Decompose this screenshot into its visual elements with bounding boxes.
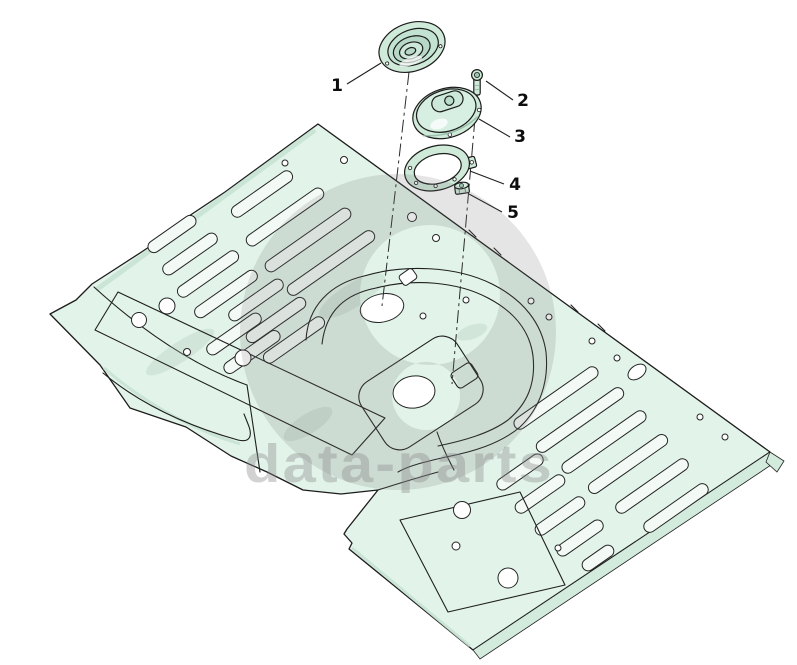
parts-diagram-canvas: 1 2 3 4 5 data-parts: [0, 0, 797, 665]
screw-head-recess: [474, 72, 479, 77]
bolt-hole: [433, 235, 440, 242]
bolt-hole: [184, 349, 191, 356]
watermark-text: data-parts: [244, 434, 554, 494]
leader-line: [479, 119, 510, 137]
part-1-cover-cap: [372, 13, 452, 81]
callout-label-3: 3: [514, 127, 526, 147]
ring-hole: [408, 166, 412, 170]
ring-hole: [452, 177, 456, 181]
callout-label-1: 1: [331, 76, 343, 96]
callout-label-4: 4: [509, 175, 521, 195]
bolt-hole: [722, 434, 728, 440]
bolt-hole: [282, 160, 288, 166]
bolt-hole: [589, 338, 595, 344]
bolt-hole: [555, 545, 561, 551]
bolt-hole: [132, 313, 147, 328]
bolt-hole: [420, 313, 426, 319]
bolt-hole: [454, 502, 471, 519]
callout-label-2: 2: [517, 91, 529, 111]
leader-line: [347, 63, 381, 84]
bolt-hole: [159, 298, 175, 314]
bolt-hole: [498, 568, 518, 588]
bolt-hole: [341, 157, 348, 164]
bolt-hole: [452, 542, 460, 550]
leader-line: [486, 81, 513, 100]
bolt-hole: [614, 355, 620, 361]
bolt-hole: [697, 414, 703, 420]
leader-line: [470, 171, 504, 184]
bolt-hole: [463, 297, 469, 303]
corner-flange-lip: [766, 452, 784, 472]
ring-tab-hole: [470, 160, 474, 164]
diagram-page: 1 2 3 4 5 data-parts: [0, 0, 797, 665]
part-2-screw: [472, 70, 483, 95]
